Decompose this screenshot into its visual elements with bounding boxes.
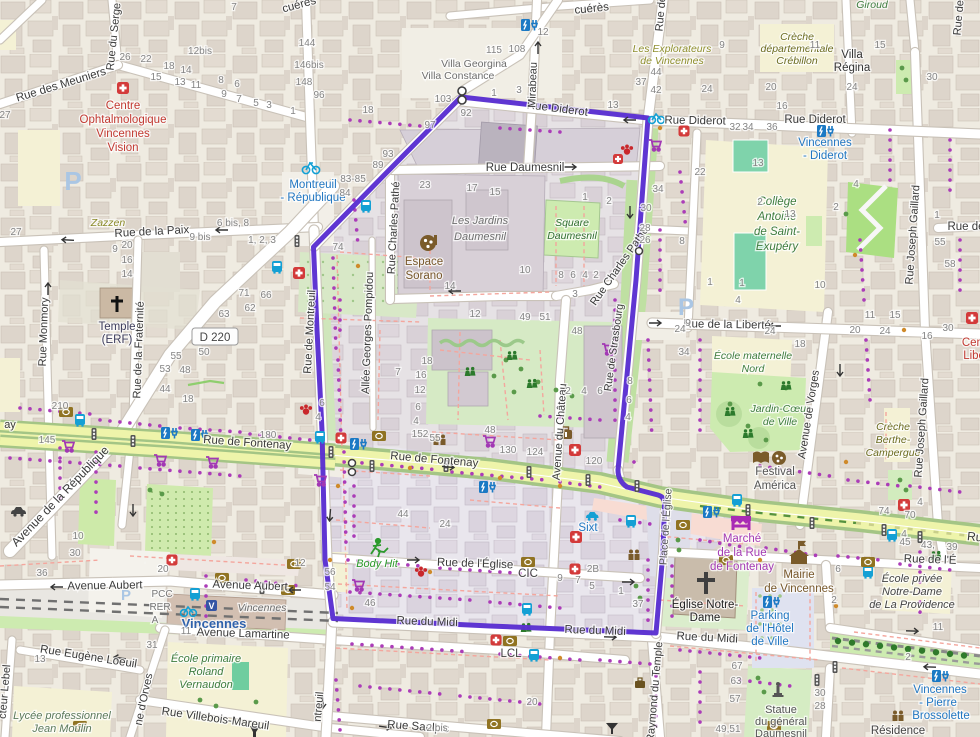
svg-text:Marché: Marché bbox=[723, 533, 761, 545]
svg-text:Villa Georgina: Villa Georgina bbox=[441, 58, 507, 70]
svg-text:58: 58 bbox=[944, 259, 956, 270]
svg-text:28: 28 bbox=[814, 701, 826, 712]
svg-text:LCL: LCL bbox=[500, 648, 522, 660]
svg-text:CIC: CIC bbox=[518, 568, 538, 580]
svg-text:Jardin-Cœur: Jardin-Cœur bbox=[750, 403, 810, 415]
svg-text:8: 8 bbox=[627, 376, 633, 387]
svg-text:30: 30 bbox=[814, 688, 826, 699]
svg-text:Roland: Roland bbox=[189, 666, 225, 678]
svg-text:7: 7 bbox=[395, 367, 401, 378]
svg-text:Rue de: Rue de bbox=[947, 221, 980, 233]
svg-text:83-85: 83-85 bbox=[340, 174, 366, 185]
svg-text:22: 22 bbox=[140, 54, 152, 65]
svg-text:34: 34 bbox=[678, 347, 690, 358]
svg-text:Daumesnil: Daumesnil bbox=[454, 231, 507, 243]
svg-text:Les Jardins: Les Jardins bbox=[452, 215, 509, 227]
svg-text:103: 103 bbox=[435, 94, 452, 105]
svg-text:26: 26 bbox=[639, 235, 651, 246]
svg-text:56: 56 bbox=[324, 567, 336, 578]
svg-text:du général: du général bbox=[755, 716, 807, 728]
svg-text:1: 1 bbox=[707, 277, 713, 288]
svg-text:97: 97 bbox=[424, 120, 436, 131]
svg-text:Rue Daumesnil: Rue Daumesnil bbox=[486, 162, 565, 174]
svg-text:Crèche: Crèche bbox=[876, 421, 910, 433]
svg-text:148: 148 bbox=[296, 77, 313, 88]
svg-text:6: 6 bbox=[319, 398, 325, 409]
svg-text:Berthe-: Berthe- bbox=[876, 434, 911, 446]
svg-text:63: 63 bbox=[730, 676, 742, 687]
svg-text:15: 15 bbox=[150, 72, 162, 83]
svg-text:Vincennes: Vincennes bbox=[798, 137, 852, 149]
svg-text:62: 62 bbox=[244, 303, 256, 314]
svg-text:- Diderot: - Diderot bbox=[803, 150, 848, 162]
svg-text:49,51: 49,51 bbox=[715, 724, 740, 735]
svg-text:51: 51 bbox=[539, 312, 551, 323]
svg-text:de Vincennes: de Vincennes bbox=[764, 583, 834, 595]
svg-text:Vernaudon: Vernaudon bbox=[179, 679, 232, 691]
svg-text:de l'Hôtel: de l'Hôtel bbox=[746, 623, 794, 635]
svg-text:12: 12 bbox=[294, 558, 306, 569]
svg-text:32: 32 bbox=[729, 122, 741, 133]
svg-text:Lycée professionnel: Lycée professionnel bbox=[13, 710, 111, 722]
svg-text:A: A bbox=[152, 615, 159, 626]
svg-text:93: 93 bbox=[382, 149, 394, 160]
svg-text:37: 37 bbox=[635, 77, 647, 88]
svg-text:23: 23 bbox=[419, 180, 431, 191]
svg-text:4: 4 bbox=[853, 179, 859, 190]
svg-text:13: 13 bbox=[607, 100, 619, 111]
svg-text:12: 12 bbox=[537, 27, 549, 38]
svg-text:34: 34 bbox=[742, 122, 754, 133]
svg-text:26: 26 bbox=[119, 52, 131, 63]
svg-text:31: 31 bbox=[146, 640, 158, 651]
svg-text:96: 96 bbox=[313, 90, 325, 101]
svg-text:36: 36 bbox=[36, 568, 48, 579]
svg-text:108: 108 bbox=[509, 44, 526, 55]
svg-text:20: 20 bbox=[765, 82, 777, 93]
svg-text:210: 210 bbox=[52, 401, 69, 412]
svg-text:13: 13 bbox=[174, 77, 186, 88]
svg-text:Les Explorateurs: Les Explorateurs bbox=[633, 43, 713, 55]
svg-text:4: 4 bbox=[413, 416, 419, 427]
svg-text:24: 24 bbox=[846, 82, 858, 93]
svg-text:144: 144 bbox=[299, 38, 316, 49]
svg-text:6: 6 bbox=[234, 79, 240, 90]
svg-text:1, 2, 3: 1, 2, 3 bbox=[248, 235, 276, 246]
svg-text:Brossolette: Brossolette bbox=[912, 710, 970, 722]
svg-text:Statue: Statue bbox=[765, 704, 797, 716]
svg-text:24: 24 bbox=[674, 324, 686, 335]
svg-text:9: 9 bbox=[685, 318, 691, 329]
svg-text:Parking: Parking bbox=[751, 610, 790, 622]
svg-text:6: 6 bbox=[415, 402, 421, 413]
svg-text:Vision: Vision bbox=[107, 142, 138, 154]
svg-text:Montreuil: Montreuil bbox=[289, 179, 336, 191]
svg-text:120: 120 bbox=[586, 456, 603, 467]
svg-text:24: 24 bbox=[439, 519, 451, 530]
svg-text:54: 54 bbox=[324, 582, 336, 593]
svg-text:48: 48 bbox=[571, 326, 583, 337]
svg-text:7: 7 bbox=[231, 2, 237, 13]
svg-text:Nord: Nord bbox=[742, 363, 766, 375]
svg-text:44: 44 bbox=[650, 67, 662, 78]
svg-text:6 bis, 8: 6 bis, 8 bbox=[217, 218, 250, 229]
svg-text:Zazzen: Zazzen bbox=[90, 217, 126, 229]
svg-text:4: 4 bbox=[582, 270, 588, 281]
svg-text:36: 36 bbox=[766, 122, 778, 133]
svg-text:39: 39 bbox=[946, 542, 958, 553]
svg-text:124: 124 bbox=[527, 447, 544, 458]
svg-text:8: 8 bbox=[218, 75, 224, 86]
svg-text:Rue Monmory: Rue Monmory bbox=[37, 297, 51, 367]
svg-text:8: 8 bbox=[558, 270, 564, 281]
svg-text:180: 180 bbox=[260, 430, 277, 441]
svg-text:70: 70 bbox=[904, 510, 916, 521]
svg-text:de Vincennes: de Vincennes bbox=[640, 55, 704, 67]
svg-text:7: 7 bbox=[575, 575, 581, 586]
svg-text:1: 1 bbox=[739, 278, 745, 289]
svg-text:Régina: Régina bbox=[834, 62, 871, 74]
svg-text:14: 14 bbox=[444, 281, 456, 292]
svg-text:Sixt: Sixt bbox=[578, 522, 598, 534]
svg-text:1: 1 bbox=[491, 88, 497, 99]
svg-text:Notre-Dame: Notre-Dame bbox=[882, 586, 942, 598]
svg-text:2: 2 bbox=[831, 595, 837, 606]
svg-text:Rue Diderot: Rue Diderot bbox=[784, 114, 846, 126]
svg-text:Crébillon: Crébillon bbox=[776, 55, 818, 67]
svg-text:6: 6 bbox=[626, 395, 632, 406]
svg-text:1: 1 bbox=[582, 192, 588, 203]
svg-text:Sorano: Sorano bbox=[405, 270, 442, 282]
svg-text:74: 74 bbox=[332, 242, 344, 253]
svg-text:Rue de l'Église: Rue de l'Église bbox=[437, 556, 514, 572]
svg-text:71: 71 bbox=[238, 288, 250, 299]
svg-text:30: 30 bbox=[69, 548, 81, 559]
svg-text:V: V bbox=[208, 601, 214, 611]
svg-text:2: 2 bbox=[833, 202, 839, 213]
svg-text:3: 3 bbox=[572, 289, 578, 300]
svg-text:Square: Square bbox=[555, 217, 589, 229]
svg-text:28: 28 bbox=[639, 223, 651, 234]
svg-text:57: 57 bbox=[729, 694, 741, 705]
svg-text:27: 27 bbox=[10, 227, 22, 238]
svg-text:130: 130 bbox=[500, 445, 517, 456]
svg-text:Villa: Villa bbox=[841, 49, 863, 61]
svg-text:15: 15 bbox=[489, 187, 501, 198]
svg-text:Mairie: Mairie bbox=[783, 569, 814, 581]
svg-text:5: 5 bbox=[253, 98, 259, 109]
svg-text:20: 20 bbox=[849, 325, 861, 336]
svg-text:départementale: départementale bbox=[761, 43, 834, 55]
svg-text:3: 3 bbox=[266, 100, 272, 111]
svg-text:10: 10 bbox=[72, 531, 84, 542]
svg-text:18: 18 bbox=[163, 61, 175, 72]
svg-text:43,: 43, bbox=[921, 540, 935, 551]
svg-text:Campergue: Campergue bbox=[866, 447, 921, 459]
svg-text:Vincennes: Vincennes bbox=[238, 602, 288, 614]
svg-text:de Saint-: de Saint- bbox=[754, 226, 800, 238]
svg-text:École privée: École privée bbox=[882, 572, 943, 585]
svg-text:1: 1 bbox=[290, 106, 296, 117]
svg-text:14: 14 bbox=[180, 65, 192, 76]
svg-text:Vincennes: Vincennes bbox=[913, 684, 967, 696]
svg-text:45: 45 bbox=[899, 537, 911, 548]
svg-text:55: 55 bbox=[934, 237, 946, 248]
svg-text:2: 2 bbox=[757, 197, 763, 208]
svg-text:66: 66 bbox=[260, 290, 272, 301]
svg-text:30: 30 bbox=[926, 72, 938, 83]
svg-text:Rue du Midi: Rue du Midi bbox=[396, 615, 458, 629]
svg-text:Espace: Espace bbox=[405, 256, 443, 268]
svg-text:24: 24 bbox=[764, 326, 776, 337]
svg-text:11: 11 bbox=[810, 40, 821, 51]
svg-text:12: 12 bbox=[414, 385, 426, 396]
svg-text:Temple: Temple bbox=[98, 321, 135, 333]
svg-text:8: 8 bbox=[679, 236, 685, 247]
svg-text:2 bis: 2 bis bbox=[426, 723, 447, 734]
svg-text:12: 12 bbox=[469, 309, 481, 320]
svg-text:9 bis: 9 bis bbox=[189, 232, 210, 243]
svg-text:14: 14 bbox=[121, 269, 133, 280]
svg-text:Rue de l'É: Rue de l'É bbox=[904, 552, 957, 567]
svg-text:École primaire: École primaire bbox=[171, 652, 241, 665]
svg-text:74: 74 bbox=[878, 506, 890, 517]
svg-text:84: 84 bbox=[339, 188, 351, 199]
svg-text:de la Rue: de la Rue bbox=[717, 547, 766, 559]
svg-text:3: 3 bbox=[516, 85, 522, 96]
svg-text:152: 152 bbox=[412, 429, 429, 440]
svg-text:de Fontenay: de Fontenay bbox=[710, 561, 774, 573]
svg-text:2: 2 bbox=[565, 386, 571, 397]
svg-text:América: América bbox=[754, 480, 797, 492]
svg-text:11: 11 bbox=[181, 626, 192, 637]
svg-text:Rue Diderot: Rue Diderot bbox=[664, 114, 726, 127]
svg-text:9: 9 bbox=[221, 89, 227, 100]
svg-text:D 220: D 220 bbox=[200, 332, 231, 344]
svg-text:11: 11 bbox=[865, 310, 876, 321]
svg-text:146bis: 146bis bbox=[294, 60, 323, 71]
svg-text:16: 16 bbox=[121, 255, 133, 266]
svg-text:44: 44 bbox=[159, 384, 171, 395]
svg-text:Giroud: Giroud bbox=[856, 0, 889, 11]
svg-text:4: 4 bbox=[315, 412, 321, 423]
svg-text:2B: 2B bbox=[587, 564, 600, 575]
svg-text:53: 53 bbox=[159, 364, 171, 375]
svg-text:92: 92 bbox=[460, 108, 472, 119]
svg-text:44: 44 bbox=[397, 509, 409, 520]
svg-text:22: 22 bbox=[694, 167, 706, 178]
svg-text:13: 13 bbox=[34, 654, 46, 665]
svg-text:20: 20 bbox=[121, 240, 133, 251]
svg-text:15: 15 bbox=[874, 40, 886, 51]
svg-text:20: 20 bbox=[526, 697, 538, 708]
svg-text:- Pierre: - Pierre bbox=[919, 697, 957, 709]
svg-text:6: 6 bbox=[835, 564, 841, 575]
svg-text:12bis: 12bis bbox=[188, 46, 212, 57]
svg-text:Mirabeau: Mirabeau bbox=[526, 62, 540, 108]
svg-text:30: 30 bbox=[942, 323, 954, 334]
svg-text:24: 24 bbox=[879, 326, 891, 337]
svg-text:9: 9 bbox=[557, 573, 563, 584]
svg-text:34: 34 bbox=[652, 184, 664, 195]
svg-text:7: 7 bbox=[236, 94, 242, 105]
svg-text:49: 49 bbox=[519, 312, 531, 323]
svg-text:Collège: Collège bbox=[758, 196, 797, 208]
svg-text:10: 10 bbox=[814, 280, 826, 291]
svg-text:1: 1 bbox=[934, 210, 940, 221]
svg-text:24: 24 bbox=[701, 84, 713, 95]
svg-text:Body Hit: Body Hit bbox=[356, 558, 399, 570]
svg-text:4: 4 bbox=[625, 412, 631, 423]
svg-text:de Ville: de Ville bbox=[763, 416, 797, 428]
svg-text:37: 37 bbox=[632, 599, 644, 610]
svg-text:Liber: Liber bbox=[963, 350, 980, 362]
svg-text:145: 145 bbox=[39, 435, 56, 446]
svg-text:de Ville: de Ville bbox=[751, 636, 789, 648]
svg-text:55: 55 bbox=[170, 351, 182, 362]
svg-text:PCC: PCC bbox=[151, 589, 172, 600]
svg-text:Exupéry: Exupéry bbox=[756, 241, 799, 253]
svg-text:27: 27 bbox=[0, 110, 11, 121]
svg-text:55: 55 bbox=[429, 433, 441, 444]
svg-text:89: 89 bbox=[372, 160, 384, 171]
svg-text:20: 20 bbox=[157, 564, 169, 575]
svg-text:17: 17 bbox=[466, 183, 478, 194]
svg-text:(ERF): (ERF) bbox=[102, 334, 133, 346]
svg-text:48: 48 bbox=[179, 365, 191, 376]
svg-text:9: 9 bbox=[112, 244, 118, 255]
svg-text:48: 48 bbox=[484, 425, 496, 436]
svg-text:2: 2 bbox=[905, 652, 911, 663]
svg-text:13: 13 bbox=[784, 209, 796, 220]
svg-text:10: 10 bbox=[519, 265, 531, 276]
svg-text:Ophtalmologique: Ophtalmologique bbox=[80, 114, 167, 126]
svg-text:4: 4 bbox=[917, 497, 923, 508]
svg-text:115: 115 bbox=[486, 45, 502, 56]
svg-text:Résidence: Résidence bbox=[871, 725, 925, 737]
svg-text:11: 11 bbox=[191, 80, 202, 91]
svg-text:RER: RER bbox=[149, 602, 170, 613]
svg-text:Centre: Centre bbox=[106, 100, 141, 112]
svg-text:Villa Constance: Villa Constance bbox=[422, 70, 495, 82]
svg-text:67: 67 bbox=[731, 661, 743, 672]
svg-text:de La Providence: de La Providence bbox=[869, 599, 955, 611]
svg-text:63: 63 bbox=[218, 309, 230, 320]
svg-text:4: 4 bbox=[581, 386, 587, 397]
svg-text:6: 6 bbox=[570, 270, 576, 281]
svg-text:Daumesnil: Daumesnil bbox=[547, 230, 597, 242]
svg-text:Daumesnil: Daumesnil bbox=[755, 728, 807, 737]
svg-text:4: 4 bbox=[735, 295, 741, 306]
svg-text:2: 2 bbox=[593, 270, 599, 281]
svg-text:16: 16 bbox=[921, 331, 933, 342]
svg-text:42: 42 bbox=[650, 85, 662, 96]
svg-text:30: 30 bbox=[640, 203, 652, 214]
svg-text:Rue du Midi: Rue du Midi bbox=[564, 624, 626, 638]
svg-text:Avenue Aubert: Avenue Aubert bbox=[67, 579, 143, 592]
svg-text:50: 50 bbox=[198, 347, 210, 358]
svg-text:Vincennes: Vincennes bbox=[96, 128, 150, 140]
svg-text:16: 16 bbox=[415, 370, 427, 381]
svg-text:Jean Moulin: Jean Moulin bbox=[31, 723, 91, 735]
svg-text:2: 2 bbox=[606, 196, 612, 207]
svg-text:Église Notre-: Église Notre- bbox=[672, 598, 739, 611]
svg-text:13: 13 bbox=[752, 158, 764, 169]
svg-text:11: 11 bbox=[933, 622, 944, 633]
svg-text:6: 6 bbox=[597, 386, 603, 397]
svg-text:Cent: Cent bbox=[962, 337, 980, 349]
svg-text:P: P bbox=[678, 294, 694, 321]
svg-text:Dame: Dame bbox=[690, 612, 721, 624]
svg-text:16: 16 bbox=[776, 101, 788, 112]
svg-text:18: 18 bbox=[794, 339, 806, 350]
svg-text:- République: - République bbox=[280, 192, 345, 204]
svg-text:Festival: Festival bbox=[755, 466, 795, 478]
svg-text:ay: ay bbox=[4, 419, 16, 431]
svg-text:18: 18 bbox=[362, 105, 374, 116]
svg-text:15: 15 bbox=[889, 310, 901, 321]
svg-text:École maternelle: École maternelle bbox=[714, 349, 792, 362]
svg-text:P: P bbox=[64, 166, 81, 196]
svg-text:Rue de la Liberté: Rue de la Liberté bbox=[683, 318, 771, 332]
svg-text:46: 46 bbox=[364, 598, 376, 609]
svg-text:18: 18 bbox=[421, 356, 433, 367]
svg-text:1: 1 bbox=[618, 586, 624, 597]
svg-text:18: 18 bbox=[182, 394, 194, 405]
svg-text:9: 9 bbox=[719, 40, 725, 51]
svg-text:5: 5 bbox=[589, 581, 595, 592]
